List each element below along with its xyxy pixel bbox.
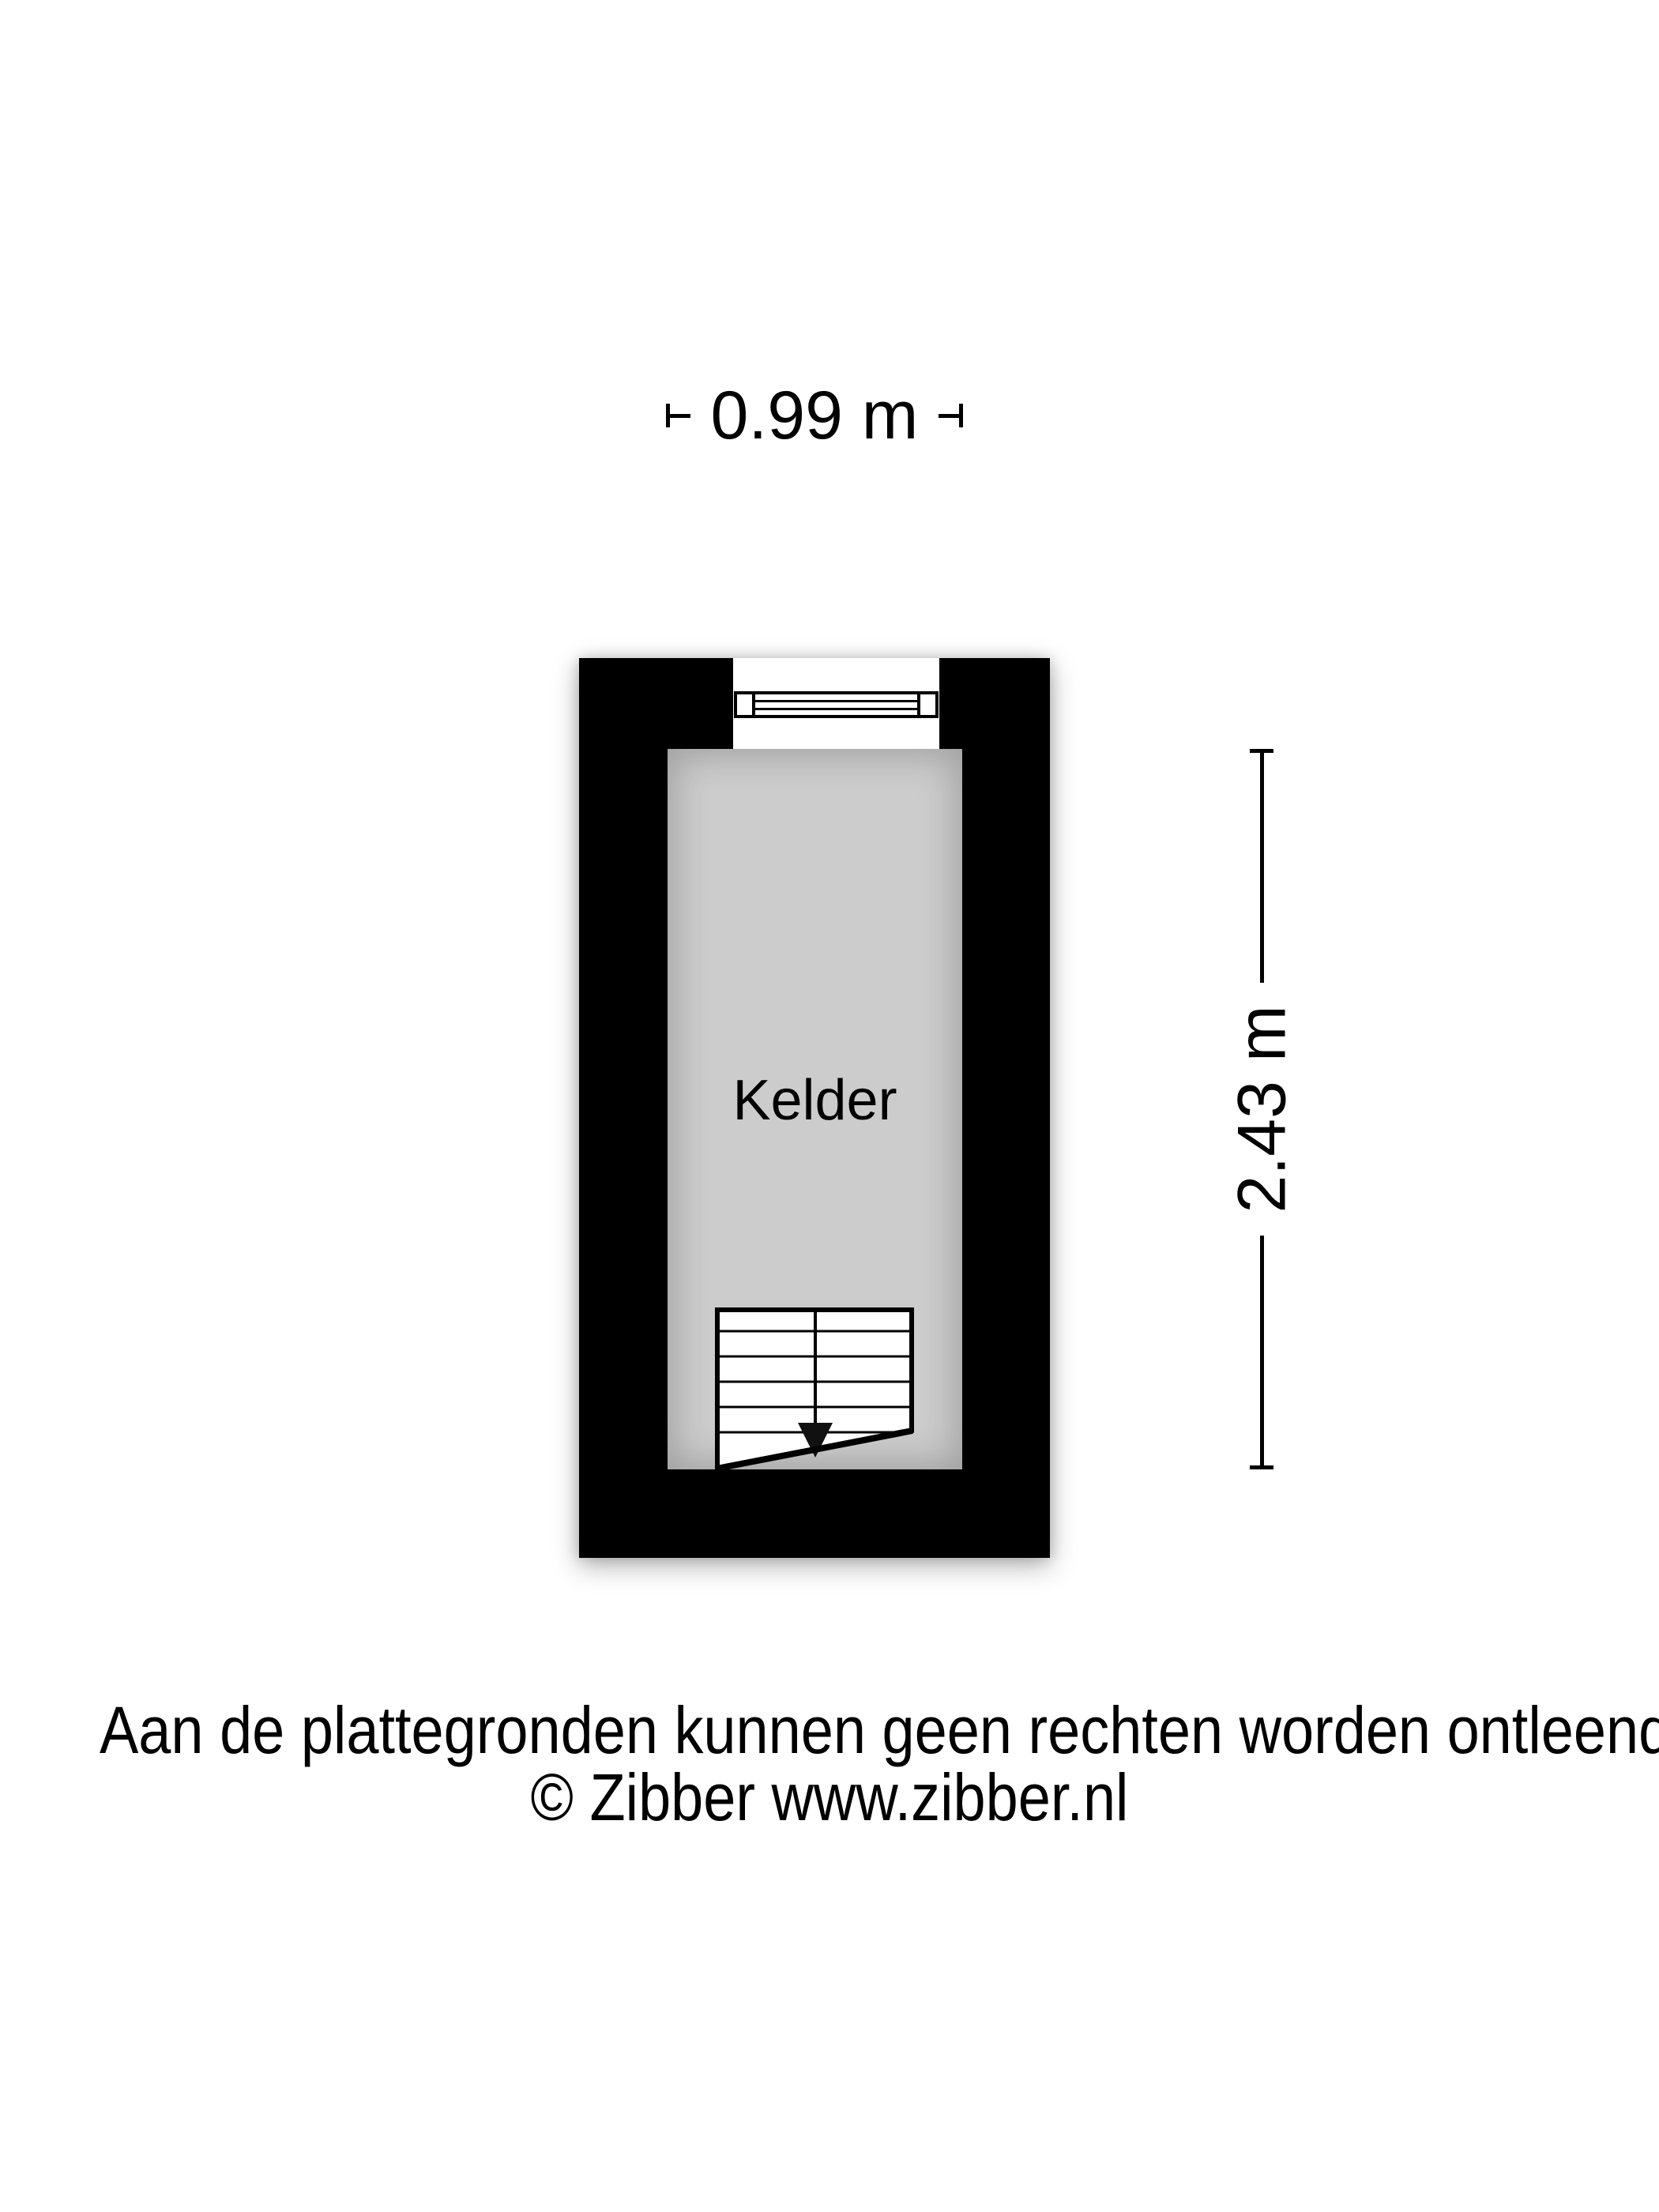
footer-disclaimer: Aan de plattegronden kunnen geen rechten… (100, 1697, 1559, 1764)
window-icon (733, 658, 939, 749)
floorplan-kelder: Kelder (579, 658, 1050, 1558)
width-dimension: 0.99 m (666, 378, 963, 453)
dimension-tick-bottom-icon (1250, 1465, 1273, 1469)
footer: Aan de plattegronden kunnen geen rechten… (100, 1697, 1559, 1831)
width-dimension-label: 0.99 m (711, 378, 919, 453)
staircase (715, 1307, 914, 1472)
floorplan-page: 0.99 m Kelder (0, 0, 1659, 2212)
dimension-tick-left-icon (666, 404, 690, 427)
window-opening (733, 658, 939, 749)
height-dimension: 2.43 m (1240, 749, 1284, 1469)
stairs-down-icon (715, 1307, 914, 1472)
height-dimension-label: 2.43 m (1228, 1006, 1296, 1213)
dimension-tick-right-icon (939, 404, 963, 427)
footer-copyright: © Zibber www.zibber.nl (100, 1764, 1559, 1831)
room-label: Kelder (668, 1072, 962, 1129)
